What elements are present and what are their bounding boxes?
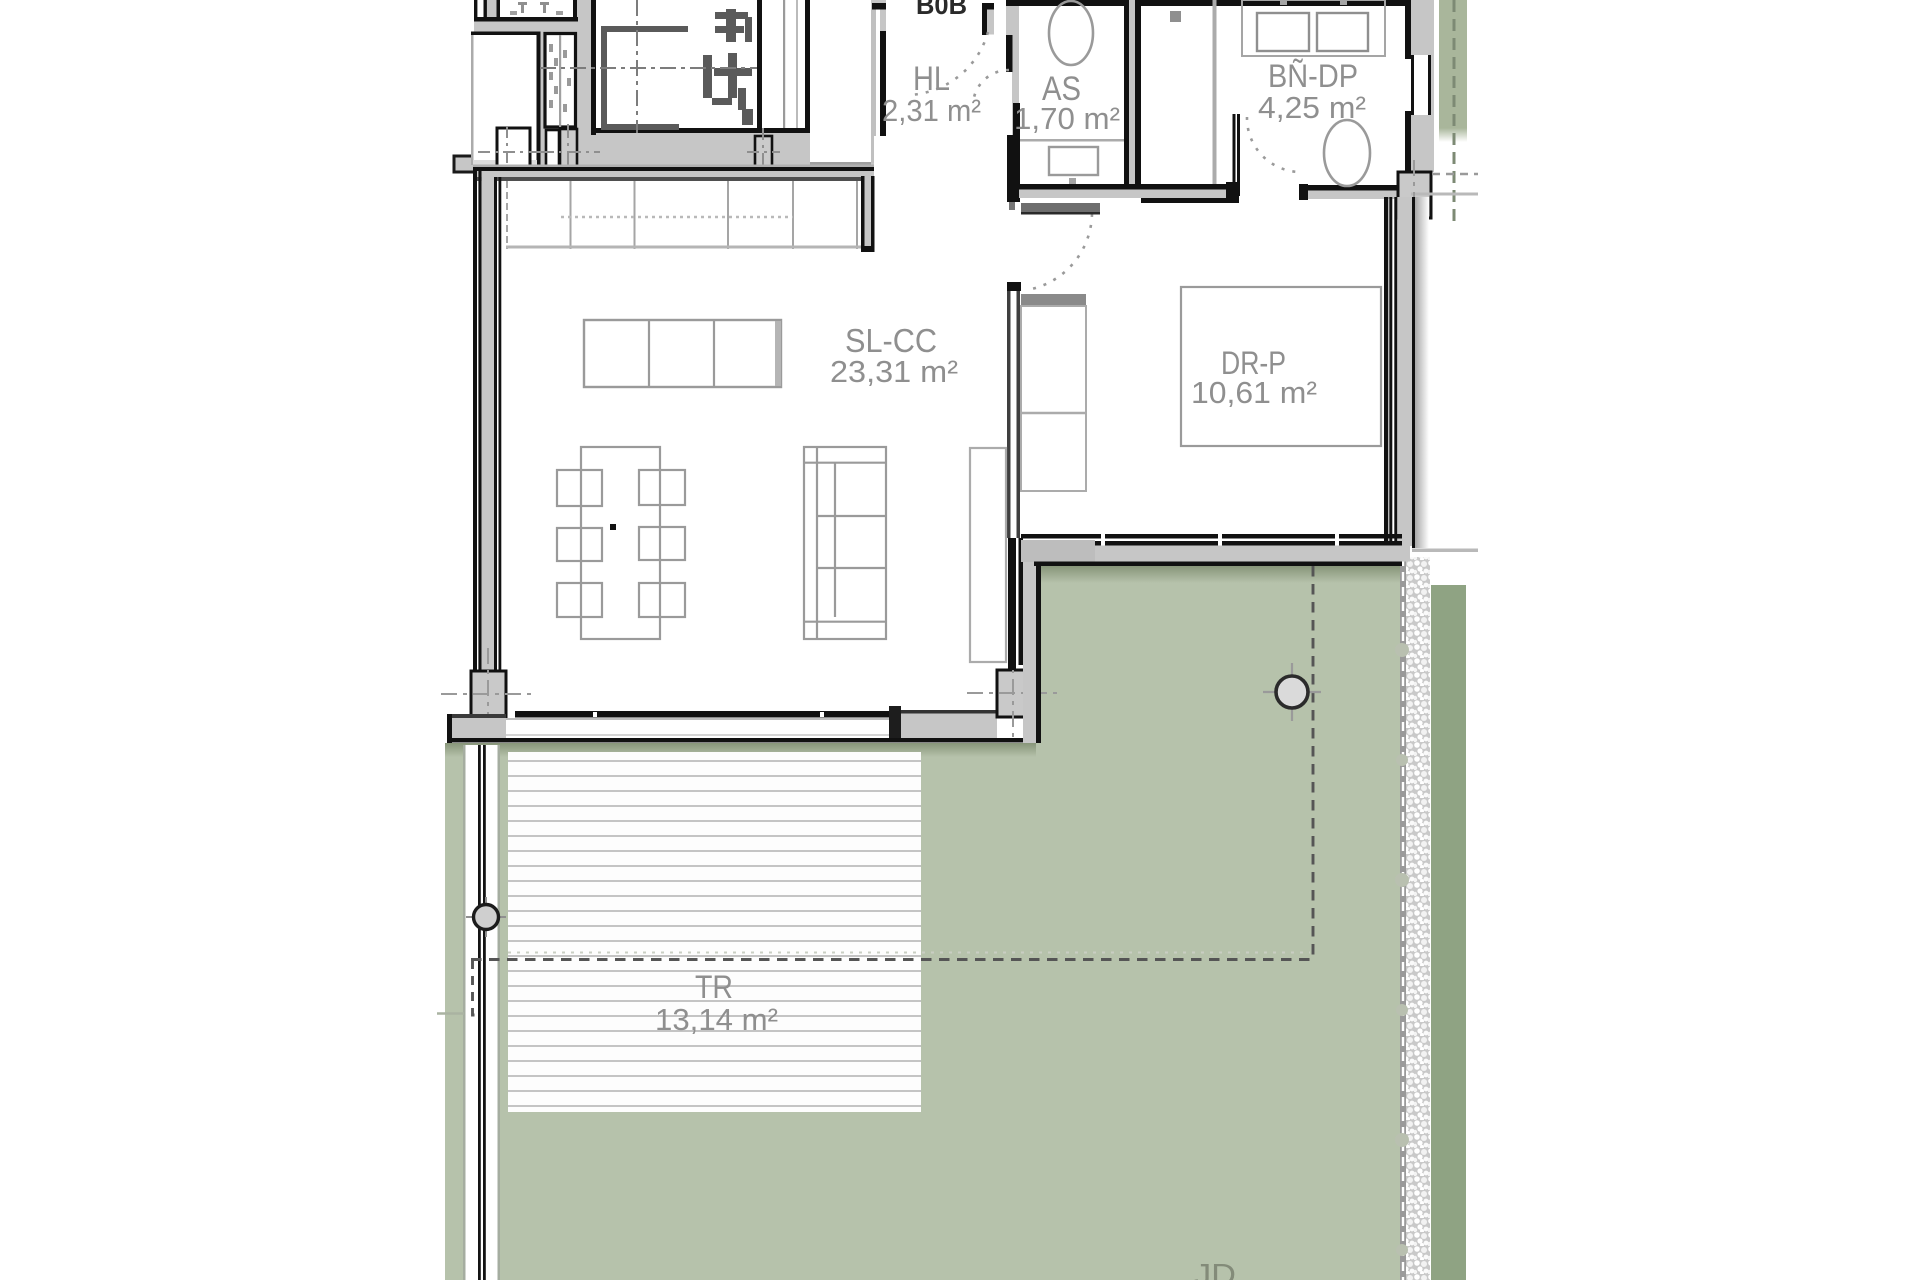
svg-text:1,70 m²: 1,70 m² (1014, 101, 1120, 136)
svg-text:JD: JD (1194, 1257, 1236, 1280)
svg-text:B0B: B0B (916, 0, 967, 20)
svg-text:2,31 m²: 2,31 m² (882, 93, 981, 128)
svg-text:10,61 m²: 10,61 m² (1191, 375, 1317, 410)
svg-text:BÑ-DP: BÑ-DP (1268, 58, 1358, 94)
svg-text:13,14 m²: 13,14 m² (655, 1002, 778, 1037)
svg-text:23,31 m²: 23,31 m² (830, 354, 958, 389)
svg-text:4,25 m²: 4,25 m² (1258, 90, 1366, 125)
svg-text:TR: TR (695, 969, 733, 1005)
